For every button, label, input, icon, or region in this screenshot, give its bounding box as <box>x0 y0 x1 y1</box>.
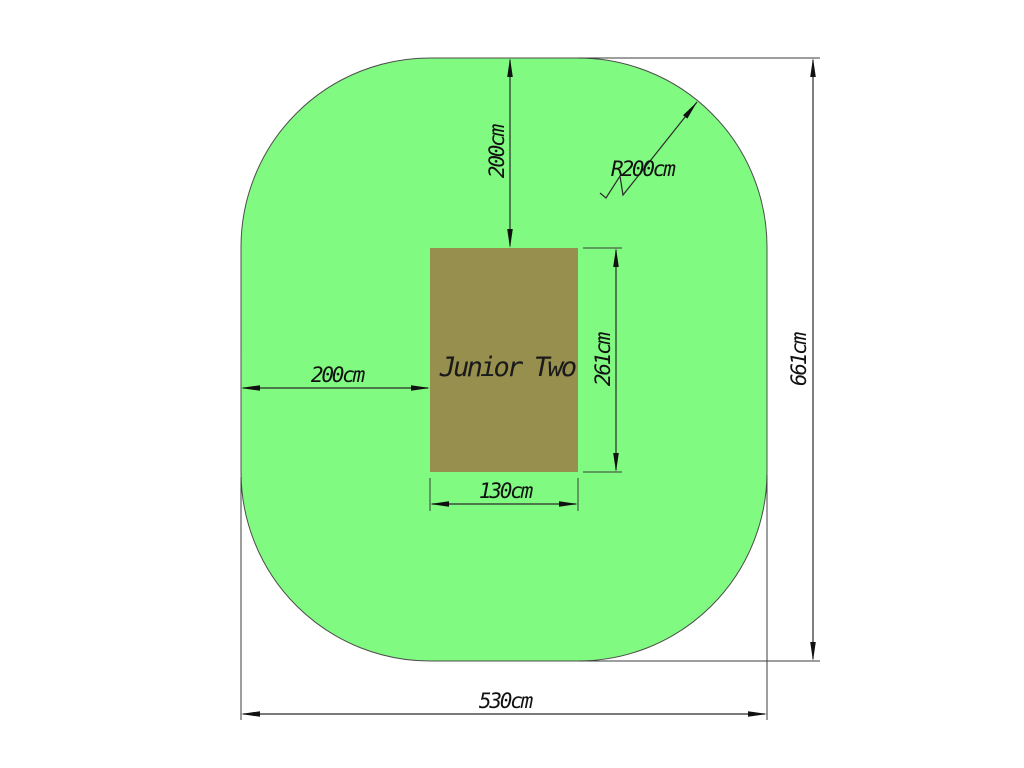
dim-label-clearance-left: 200cm <box>311 363 366 387</box>
playground-safety-zone-diagram: Junior Two 200cm R200cm 661cm 200cm 261c… <box>0 0 1024 768</box>
equipment-label: Junior Two <box>439 352 576 383</box>
dim-label-overall-width: 530cm <box>479 689 534 713</box>
dim-label-overall-height: 661cm <box>787 331 811 386</box>
dim-label-equipment-height: 261cm <box>591 331 615 386</box>
dim-label-corner-radius: R200cm <box>611 157 676 181</box>
dim-label-equipment-width: 130cm <box>479 479 534 503</box>
dim-label-clearance-top: 200cm <box>485 123 509 178</box>
